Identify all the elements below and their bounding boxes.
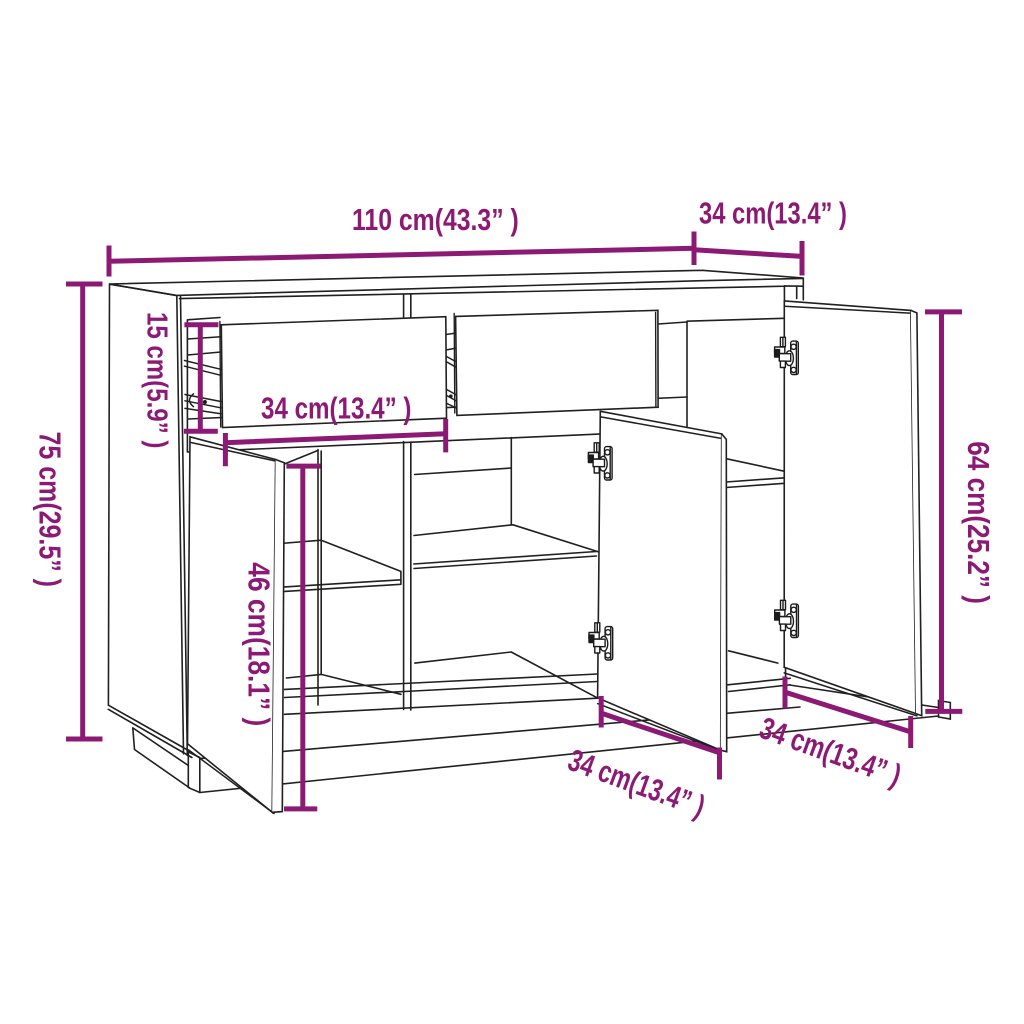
svg-text:110 cm(43.3” ): 110 cm(43.3” )	[352, 202, 519, 236]
svg-text:34 cm(13.4” ): 34 cm(13.4” )	[699, 195, 847, 230]
svg-text:15 cm(5.9” ): 15 cm(5.9” )	[141, 312, 174, 448]
svg-text:75 cm(29.5” ): 75 cm(29.5” )	[33, 432, 67, 587]
svg-text:64 cm(25.2” ): 64 cm(25.2” )	[960, 441, 995, 604]
svg-text:46 cm(18.1” ): 46 cm(18.1” )	[241, 562, 275, 726]
svg-text:34 cm(13.4” ): 34 cm(13.4” )	[261, 391, 411, 426]
